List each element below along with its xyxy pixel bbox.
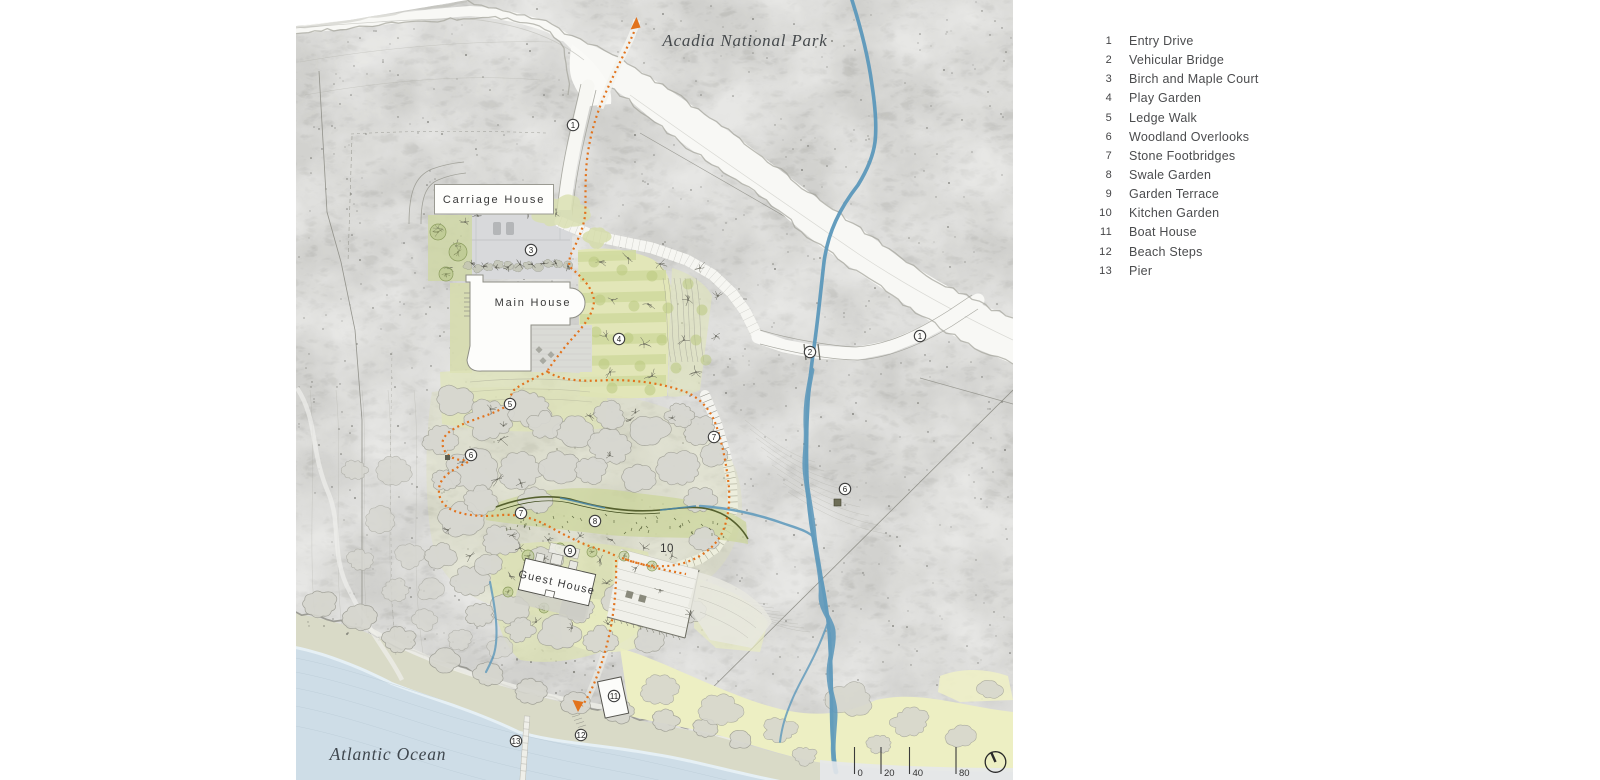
svg-text:40: 40 xyxy=(913,768,924,779)
svg-text:1: 1 xyxy=(918,332,923,341)
svg-text:Atlantic Ocean: Atlantic Ocean xyxy=(329,744,447,764)
svg-text:3: 3 xyxy=(529,246,534,255)
svg-text:13: 13 xyxy=(512,737,521,746)
svg-text:2: 2 xyxy=(808,348,813,357)
svg-text:6: 6 xyxy=(469,451,474,460)
svg-text:12: 12 xyxy=(577,731,586,740)
svg-text:7: 7 xyxy=(712,433,717,442)
svg-text:6: 6 xyxy=(843,485,848,494)
svg-text:8: 8 xyxy=(593,517,598,526)
svg-text:11: 11 xyxy=(610,692,619,701)
svg-text:4: 4 xyxy=(617,335,622,344)
svg-text:Main House: Main House xyxy=(495,297,572,309)
svg-text:20: 20 xyxy=(884,768,895,779)
svg-text:7: 7 xyxy=(519,509,524,518)
svg-text:1: 1 xyxy=(571,121,576,130)
svg-text:10: 10 xyxy=(660,543,674,555)
svg-text:80: 80 xyxy=(959,768,970,779)
svg-text:Acadia National Park: Acadia National Park xyxy=(661,31,827,50)
svg-text:5: 5 xyxy=(508,400,513,409)
svg-text:Carriage House: Carriage House xyxy=(443,194,545,206)
svg-text:0: 0 xyxy=(858,768,863,779)
svg-text:9: 9 xyxy=(568,547,573,556)
